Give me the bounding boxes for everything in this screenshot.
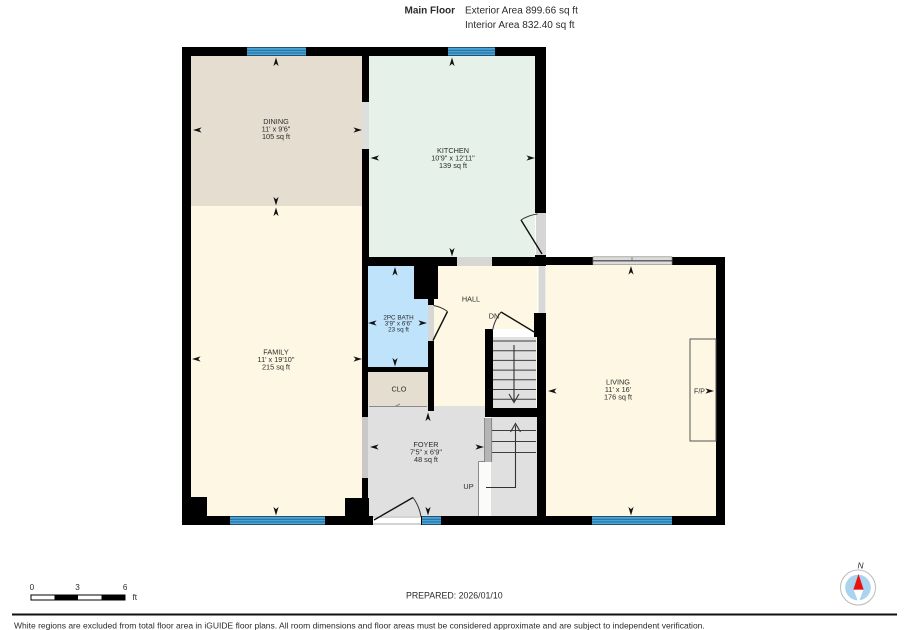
svg-text:Main Floor: Main Floor [405, 6, 456, 17]
svg-text:UP: UP [463, 482, 473, 491]
svg-text:23 sq ft: 23 sq ft [388, 327, 409, 334]
svg-text:HALL: HALL [462, 295, 480, 304]
svg-text:F/P: F/P [694, 389, 705, 396]
svg-text:3: 3 [75, 583, 80, 592]
svg-text:0: 0 [30, 583, 35, 592]
svg-text:215 sq ft: 215 sq ft [262, 363, 290, 372]
svg-text:DN: DN [489, 312, 500, 321]
svg-text:N: N [857, 560, 864, 570]
svg-text:CLO: CLO [391, 385, 406, 394]
svg-text:White regions are excluded fro: White regions are excluded from total fl… [14, 621, 705, 630]
svg-text:139 sq ft: 139 sq ft [439, 161, 467, 170]
svg-text:6: 6 [123, 583, 128, 592]
svg-text:ft: ft [133, 593, 138, 602]
svg-text:48 sq ft: 48 sq ft [414, 455, 438, 464]
svg-text:Exterior Area 899.66 sq ft: Exterior Area 899.66 sq ft [465, 6, 578, 17]
svg-text:176 sq ft: 176 sq ft [604, 393, 632, 402]
svg-text:Interior Area 832.40 sq ft: Interior Area 832.40 sq ft [465, 20, 575, 31]
svg-text:PREPARED: 2026/01/10: PREPARED: 2026/01/10 [406, 590, 503, 600]
svg-text:105 sq ft: 105 sq ft [262, 132, 290, 141]
